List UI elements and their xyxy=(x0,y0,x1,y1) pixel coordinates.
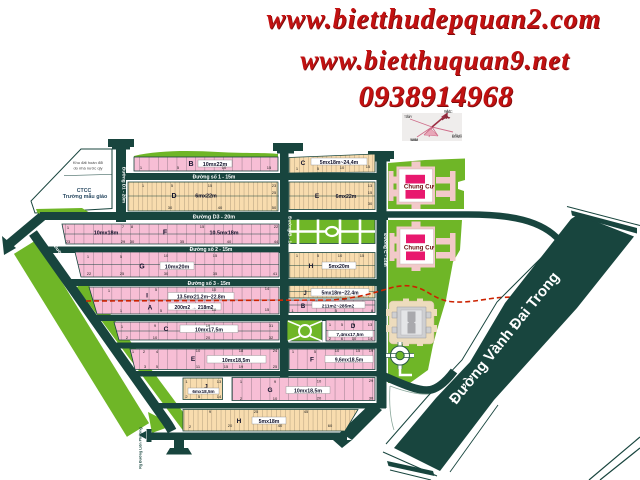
svg-text:C: C xyxy=(164,326,169,333)
svg-text:6mx22m: 6mx22m xyxy=(195,194,217,200)
svg-text:10: 10 xyxy=(335,348,340,353)
svg-text:29: 29 xyxy=(369,378,374,383)
svg-text:Khu đất hoàn đổi: Khu đất hoàn đổi xyxy=(73,160,103,165)
svg-text:23: 23 xyxy=(272,183,277,188)
svg-text:25: 25 xyxy=(120,271,125,276)
svg-text:19: 19 xyxy=(369,348,374,353)
svg-text:60: 60 xyxy=(328,423,333,428)
svg-text:30: 30 xyxy=(168,205,173,210)
svg-text:Đường số 1 - 15m: Đường số 1 - 15m xyxy=(193,174,236,181)
svg-text:H: H xyxy=(309,263,314,270)
svg-text:C: C xyxy=(301,160,306,167)
svg-text:30: 30 xyxy=(130,239,135,244)
svg-text:6mx18,5m: 6mx18,5m xyxy=(192,389,214,394)
svg-text:14: 14 xyxy=(217,394,222,399)
svg-text:6mx22m: 6mx22m xyxy=(336,194,357,200)
svg-text:10: 10 xyxy=(317,379,322,384)
svg-text:10mx18,5m: 10mx18,5m xyxy=(294,389,322,395)
svg-text:40: 40 xyxy=(227,239,232,244)
svg-text:Đường C - 14m: Đường C - 14m xyxy=(383,233,388,266)
svg-text:22: 22 xyxy=(274,224,279,229)
svg-text:Đường số 2 - 15m: Đường số 2 - 15m xyxy=(190,246,233,253)
svg-text:TÂY: TÂY xyxy=(406,115,413,119)
svg-text:5mx20m: 5mx20m xyxy=(329,264,350,270)
svg-text:20: 20 xyxy=(228,423,233,428)
svg-text:G: G xyxy=(139,264,145,271)
svg-text:G: G xyxy=(267,387,272,394)
svg-text:ĐÔNG: ĐÔNG xyxy=(452,134,462,139)
svg-text:40: 40 xyxy=(218,205,223,210)
svg-text:13: 13 xyxy=(368,183,373,188)
svg-text:Đường D1 - 20m: Đường D1 - 20m xyxy=(122,167,127,203)
svg-text:19: 19 xyxy=(206,323,211,328)
svg-text:14: 14 xyxy=(368,336,373,341)
svg-text:E: E xyxy=(315,193,320,200)
svg-text:40: 40 xyxy=(278,423,283,428)
svg-text:Đường B - 14m: Đường B - 14m xyxy=(288,216,293,249)
svg-text:13: 13 xyxy=(368,322,373,327)
svg-text:NAM: NAM xyxy=(411,138,418,142)
svg-text:BẮC: BẮC xyxy=(446,109,453,114)
svg-text:9,6mx18,5m: 9,6mx18,5m xyxy=(335,358,364,364)
svg-text:20: 20 xyxy=(317,396,322,401)
svg-text:10: 10 xyxy=(212,287,217,292)
svg-text:B: B xyxy=(188,161,193,168)
svg-text:35: 35 xyxy=(180,239,185,244)
svg-text:E: E xyxy=(191,356,196,363)
svg-text:13.5mx21.2m~22.8m: 13.5mx21.2m~22.8m xyxy=(177,295,226,301)
svg-text:5mx18m~22.4m: 5mx18m~22.4m xyxy=(321,291,359,297)
svg-text:22: 22 xyxy=(87,271,92,276)
svg-text:15: 15 xyxy=(208,183,213,188)
svg-text:45: 45 xyxy=(304,409,309,414)
svg-text:41: 41 xyxy=(273,271,278,276)
svg-text:D: D xyxy=(171,193,176,200)
svg-text:15: 15 xyxy=(360,253,365,258)
svg-text:15: 15 xyxy=(267,165,272,170)
svg-text:30: 30 xyxy=(368,201,373,206)
svg-text:10: 10 xyxy=(340,165,345,170)
svg-text:10: 10 xyxy=(196,348,201,353)
svg-text:J: J xyxy=(303,291,306,297)
svg-text:30: 30 xyxy=(369,396,374,401)
svg-text:10: 10 xyxy=(153,335,158,340)
svg-text:10: 10 xyxy=(164,253,169,258)
svg-text:10: 10 xyxy=(212,307,217,312)
svg-text:15: 15 xyxy=(368,190,373,195)
svg-text:15: 15 xyxy=(366,164,371,169)
svg-text:35: 35 xyxy=(213,271,218,276)
svg-text:29: 29 xyxy=(121,239,126,244)
svg-text:10: 10 xyxy=(352,336,357,341)
svg-text:10: 10 xyxy=(273,396,278,401)
svg-text:211m2~285m2: 211m2~285m2 xyxy=(322,304,355,310)
svg-text:23: 23 xyxy=(66,239,71,244)
svg-text:25: 25 xyxy=(272,190,277,195)
svg-text:B: B xyxy=(301,304,306,310)
svg-text:15: 15 xyxy=(200,224,205,229)
svg-text:10mx20m: 10mx20m xyxy=(165,265,190,271)
svg-text:Chung Cư: Chung Cư xyxy=(404,245,435,252)
svg-text:F: F xyxy=(310,357,314,364)
svg-text:Chung Cư: Chung Cư xyxy=(404,184,435,191)
svg-text:44: 44 xyxy=(274,239,279,244)
svg-text:I: I xyxy=(146,293,148,300)
svg-text:24: 24 xyxy=(273,348,278,353)
svg-text:A: A xyxy=(148,305,153,312)
svg-text:20: 20 xyxy=(206,335,211,340)
svg-text:10mx17,5m: 10mx17,5m xyxy=(195,328,223,334)
svg-text:do nhà nước qly: do nhà nước qly xyxy=(73,166,102,171)
svg-text:25: 25 xyxy=(254,409,259,414)
svg-text:15: 15 xyxy=(356,348,361,353)
svg-text:50: 50 xyxy=(272,205,277,210)
svg-text:19: 19 xyxy=(239,364,244,369)
svg-text:200m2 → 218m2: 200m2 → 218m2 xyxy=(175,305,214,311)
svg-text:15: 15 xyxy=(265,307,270,312)
svg-text:13: 13 xyxy=(217,379,222,384)
svg-text:Trường mẫu giáo: Trường mẫu giáo xyxy=(63,193,108,200)
svg-text:10: 10 xyxy=(338,253,343,258)
svg-text:5mx18m: 5mx18m xyxy=(259,419,280,425)
svg-text:10.5mx18m: 10.5mx18m xyxy=(209,231,238,237)
svg-text:10mx18m: 10mx18m xyxy=(94,231,119,237)
svg-text:32: 32 xyxy=(269,335,274,340)
svg-text:H: H xyxy=(237,418,242,425)
svg-text:25: 25 xyxy=(273,364,278,369)
svg-text:18: 18 xyxy=(239,348,244,353)
svg-text:14: 14 xyxy=(265,286,270,291)
svg-text:F: F xyxy=(163,230,168,237)
svg-text:31: 31 xyxy=(269,323,274,328)
svg-text:10: 10 xyxy=(222,165,227,170)
svg-text:Đường D3 - 20m: Đường D3 - 20m xyxy=(193,215,235,221)
svg-text:30: 30 xyxy=(164,271,169,276)
svg-text:15: 15 xyxy=(213,253,218,258)
svg-text:Rg Đường Liên Phường: Rg Đường Liên Phường xyxy=(139,427,143,468)
svg-text:Đường số 3 - 15m: Đường số 3 - 15m xyxy=(188,280,231,287)
svg-text:15: 15 xyxy=(224,364,229,369)
